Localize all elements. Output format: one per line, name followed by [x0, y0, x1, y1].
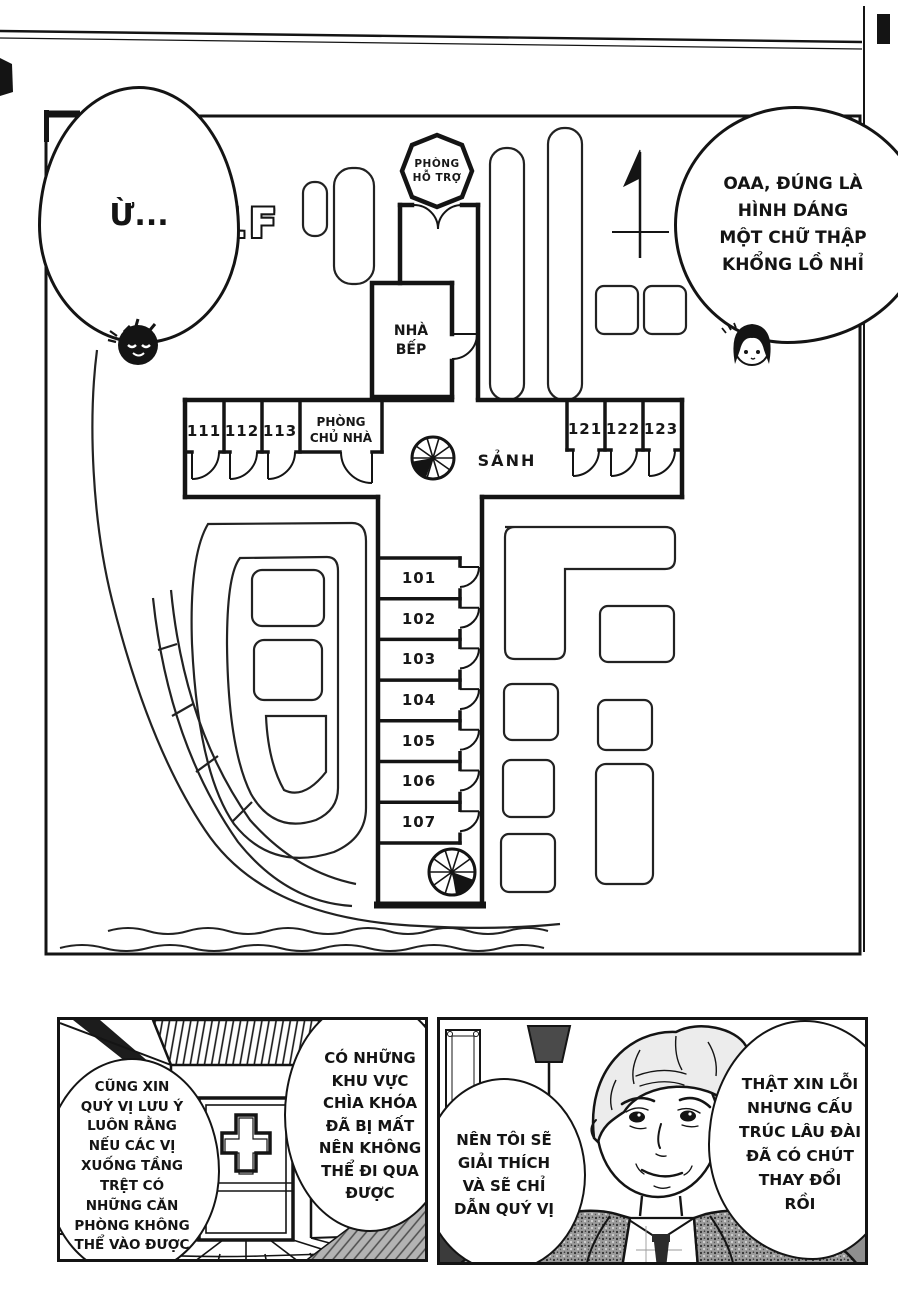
- chibi-face-girl-icon: [716, 318, 786, 370]
- left-edge-mark: [0, 58, 13, 96]
- chibi-face-boy-icon: [106, 318, 170, 368]
- speech-text: Ừ...: [109, 198, 168, 233]
- owner-room-label: PHÒNG CHỦ NHÀ: [310, 414, 372, 446]
- speech-text: CÓ NHỮNG KHU VỰC CHÌA KHÓA ĐÃ BỊ MẤT NÊN…: [319, 1025, 421, 1205]
- north-arrow-icon: [612, 150, 669, 258]
- room-107-label: 107: [402, 812, 436, 832]
- room-105-label: 105: [402, 731, 436, 751]
- room-121-label: 121: [568, 419, 602, 439]
- speech-text: CŨNG XIN QUÝ VỊ LƯU Ý LUÔN RẰNG NẾU CÁC …: [74, 1078, 189, 1257]
- panel-butler: NÊN TÔI SẼ GIẢI THÍCH VÀ SẼ CHỈ DẪN QUÝ …: [437, 1017, 868, 1265]
- room-123-label: 123: [644, 419, 678, 439]
- room-101-label: 101: [402, 568, 436, 588]
- room-103-label: 103: [402, 649, 436, 669]
- tie: [652, 1234, 670, 1242]
- room-102-label: 102: [402, 609, 436, 629]
- speech-text: NÊN TÔI SẼ GIẢI THÍCH VÀ SẼ CHỈ DẪN QUÝ …: [454, 1129, 554, 1222]
- manga-page: 1F PHÒNG HỖ TRỢ NHÀ BẾP PHÒNG CHỦ NHÀ SẢ…: [0, 0, 898, 1300]
- room-122-label: 122: [606, 419, 640, 439]
- panel-hallway: CŨNG XIN QUÝ VỊ LƯU Ý LUÔN RẰNG NẾU CÁC …: [57, 1017, 428, 1262]
- room-106-label: 106: [402, 771, 436, 791]
- kitchen-label: NHÀ BẾP: [394, 322, 428, 360]
- hall-label: SẢNH: [478, 450, 537, 472]
- room-111-label: 111: [187, 421, 221, 441]
- corner-mark: [877, 14, 890, 44]
- room-104-label: 104: [402, 690, 436, 710]
- speech-text: OAA, ĐÚNG LÀ HÌNH DÁNG MỘT CHỮ THẬP KHỔN…: [719, 171, 866, 280]
- support-room-label: PHÒNG HỖ TRỢ: [413, 157, 462, 185]
- speech-text: THẬT XIN LỖI NHƯNG CẤU TRÚC LÂU ĐÀI ĐÃ C…: [739, 1064, 861, 1216]
- page-top-rule: [0, 31, 862, 49]
- speech-bubble-cross-shape: OAA, ĐÚNG LÀ HÌNH DÁNG MỘT CHỮ THẬP KHỔN…: [674, 106, 898, 344]
- room-113-label: 113: [263, 421, 297, 441]
- room-112-label: 112: [225, 421, 259, 441]
